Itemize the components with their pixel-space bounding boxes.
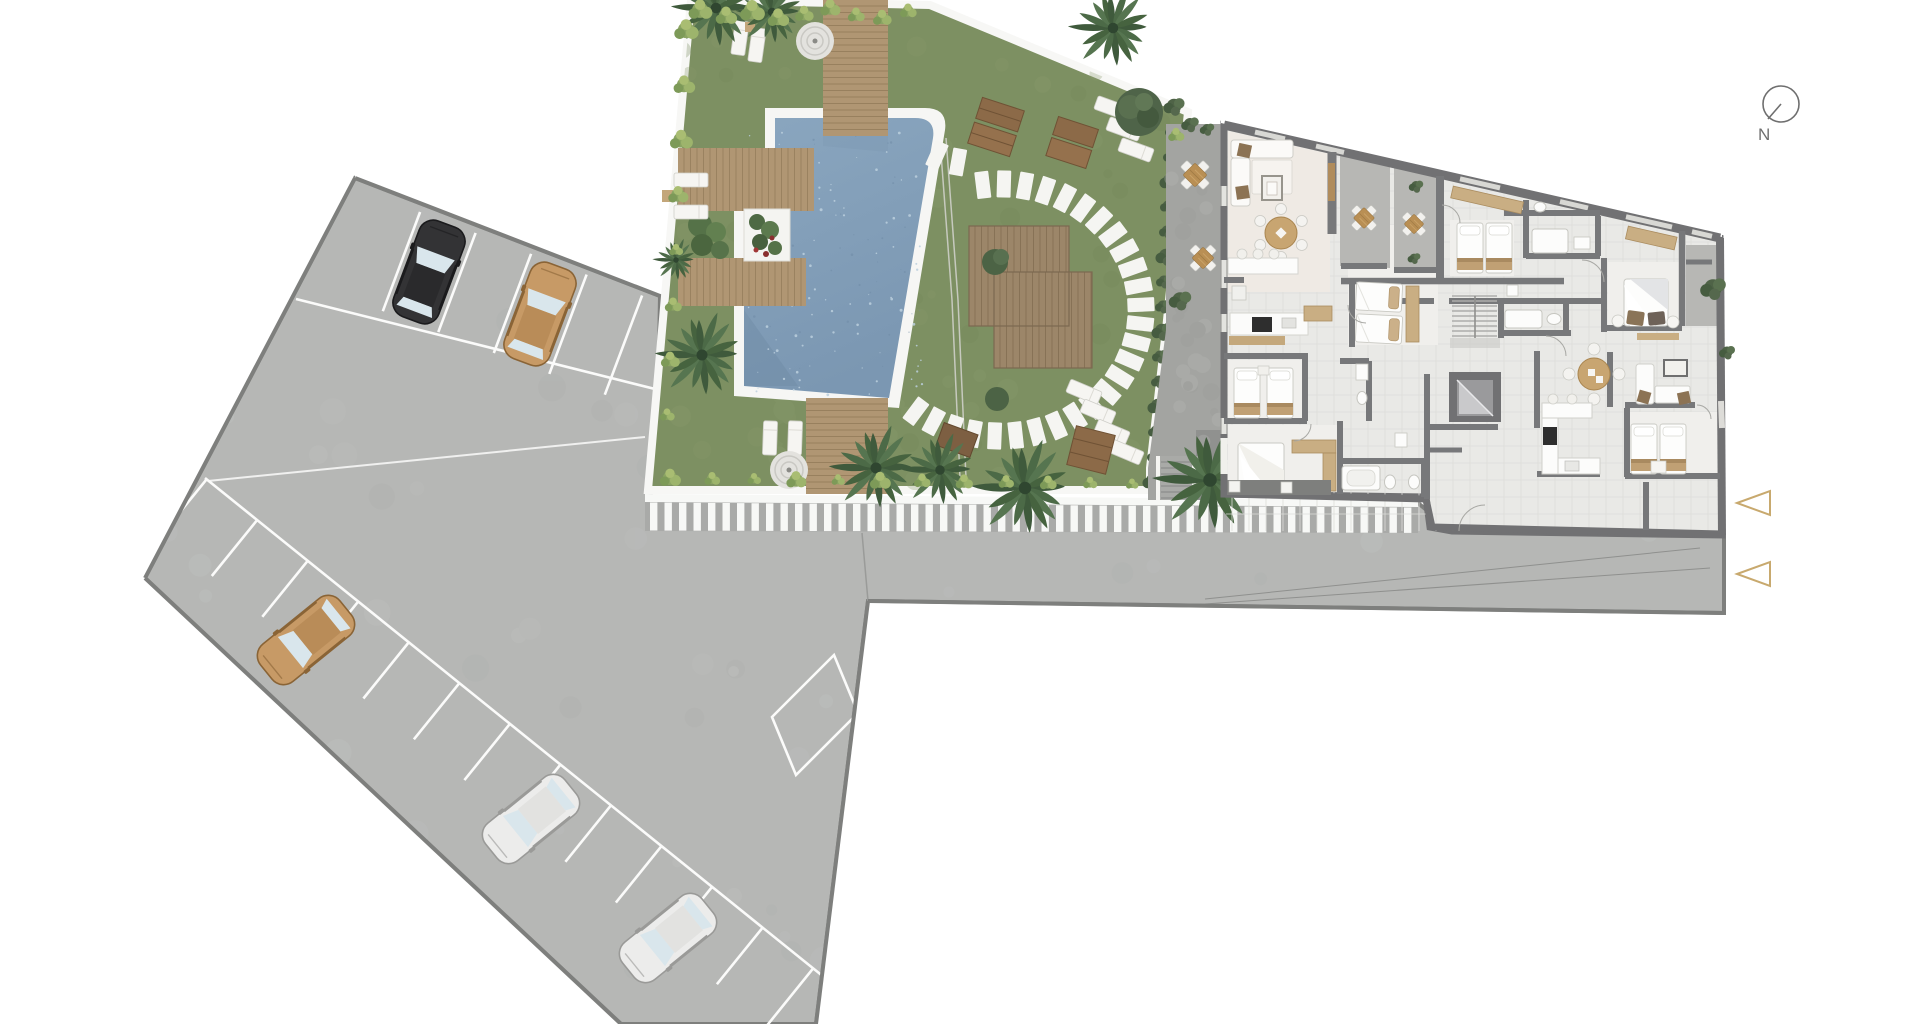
svg-text:N: N — [1758, 125, 1770, 144]
